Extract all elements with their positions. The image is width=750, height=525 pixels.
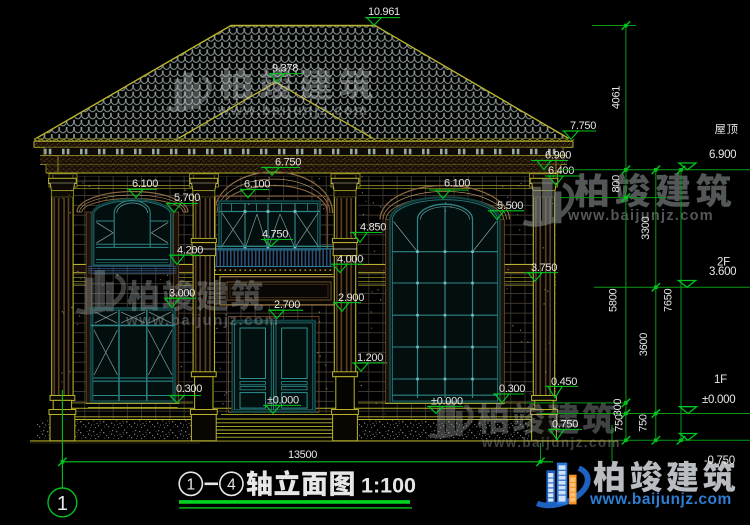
svg-text:6.750: 6.750 <box>275 157 301 169</box>
svg-text:2.900: 2.900 <box>338 292 364 304</box>
svg-text:1F: 1F <box>714 374 727 386</box>
svg-text:4.000: 4.000 <box>337 253 363 265</box>
svg-text:0.300: 0.300 <box>499 383 525 395</box>
svg-text:6.900: 6.900 <box>709 149 736 161</box>
svg-text:9.378: 9.378 <box>272 63 298 75</box>
svg-text:3.000: 3.000 <box>169 287 195 299</box>
svg-text:0.450: 0.450 <box>551 376 577 388</box>
svg-text:www.baijunjz.com: www.baijunjz.com <box>481 435 621 450</box>
svg-text:6.100: 6.100 <box>244 178 270 190</box>
svg-text:3.750: 3.750 <box>531 262 557 274</box>
svg-text:1.200: 1.200 <box>357 352 383 364</box>
svg-text:±0.000: ±0.000 <box>431 395 463 407</box>
svg-text:2.700: 2.700 <box>274 299 300 311</box>
svg-text:0.300: 0.300 <box>176 383 202 395</box>
svg-text:6.900: 6.900 <box>545 150 571 162</box>
svg-text:7650: 7650 <box>663 288 675 311</box>
svg-text:3600: 3600 <box>638 333 650 356</box>
svg-text:4.750: 4.750 <box>262 229 288 241</box>
svg-text:10.961: 10.961 <box>368 6 400 18</box>
svg-text:www.baijunjz.com: www.baijunjz.com <box>589 491 732 508</box>
svg-text:1:100: 1:100 <box>361 474 416 498</box>
svg-text:3.600: 3.600 <box>709 266 736 278</box>
svg-text:750: 750 <box>638 414 650 432</box>
svg-text:6.100: 6.100 <box>132 178 158 190</box>
svg-text:7.750: 7.750 <box>570 120 596 132</box>
svg-text:5800: 5800 <box>608 288 620 311</box>
svg-text:4061: 4061 <box>611 86 623 109</box>
svg-text:5.700: 5.700 <box>174 192 200 204</box>
svg-text:1: 1 <box>186 476 195 493</box>
svg-text:±0.000: ±0.000 <box>702 394 735 406</box>
svg-text:300: 300 <box>612 399 624 417</box>
svg-text:4: 4 <box>227 476 236 493</box>
svg-text:6.400: 6.400 <box>548 165 574 177</box>
svg-text:±0.000: ±0.000 <box>267 394 299 406</box>
svg-text:0.750: 0.750 <box>552 419 578 431</box>
svg-text:800: 800 <box>611 175 623 193</box>
svg-text:13500: 13500 <box>288 449 317 461</box>
svg-text:3300: 3300 <box>640 216 652 239</box>
svg-text:www.baijunjz.com: www.baijunjz.com <box>217 103 369 119</box>
svg-text:6.100: 6.100 <box>444 177 470 189</box>
svg-text:750: 750 <box>614 414 626 432</box>
svg-text:4.200: 4.200 <box>177 244 203 256</box>
svg-text:www.baijunjz.com: www.baijunjz.com <box>125 312 279 329</box>
svg-text:1: 1 <box>57 493 68 515</box>
svg-text:-0.750: -0.750 <box>704 455 735 467</box>
svg-text:4.850: 4.850 <box>360 222 386 234</box>
svg-text:5.500: 5.500 <box>497 200 523 212</box>
